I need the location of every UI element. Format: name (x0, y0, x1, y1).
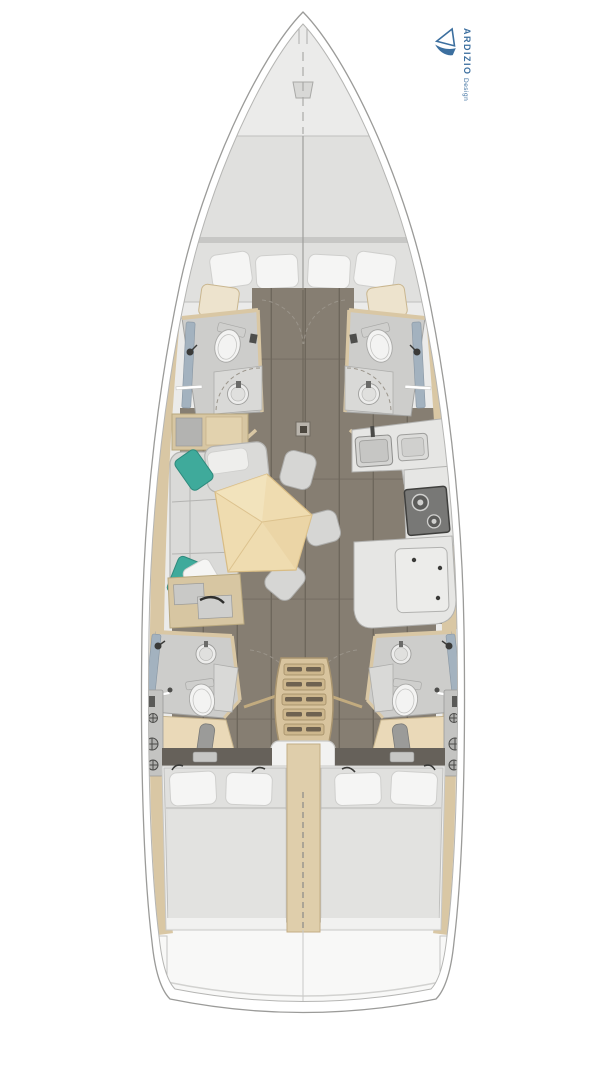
galley-sink-second (397, 433, 429, 461)
designer-tagline: Design (462, 78, 472, 101)
companionway-stairs (275, 658, 333, 742)
mast-base (296, 422, 310, 436)
yacht-layout-plan: ARDIZIO Design (0, 0, 607, 1080)
forward-head-starboard (345, 310, 431, 416)
hull-interior (120, 0, 490, 1080)
salon-cabinet (168, 574, 244, 628)
sailboat-icon (431, 26, 461, 59)
fridge (395, 547, 449, 613)
forward-head-port (176, 310, 262, 416)
forward-berth (159, 136, 447, 302)
hardware-panel-starboard (444, 690, 464, 776)
aft-cabin-port (162, 748, 287, 930)
hardware-panel-port (143, 690, 163, 776)
designer-logo: ARDIZIO Design (433, 28, 472, 101)
pillow (307, 254, 351, 289)
aft-cabin-divider (287, 744, 320, 932)
pillow (353, 250, 397, 289)
pillow (255, 254, 299, 289)
boat-floorplan-drawing (0, 0, 607, 1080)
aft-cabin-starboard (320, 748, 445, 930)
pillow (209, 250, 253, 289)
designer-brand: ARDIZIO (462, 28, 472, 76)
designer-logo-text: ARDIZIO Design (462, 28, 472, 101)
stove (404, 486, 450, 535)
